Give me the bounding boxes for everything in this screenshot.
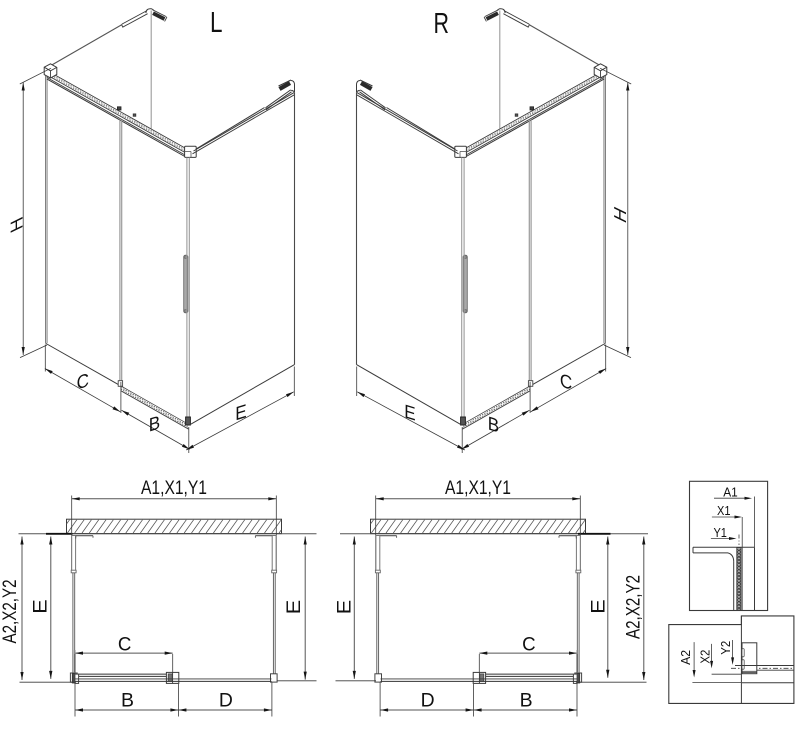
svg-text:E: E bbox=[404, 400, 415, 425]
svg-text:A2: A2 bbox=[678, 650, 693, 665]
svg-text:A1,X1,Y1: A1,X1,Y1 bbox=[141, 478, 207, 499]
svg-text:Y1: Y1 bbox=[713, 525, 727, 540]
svg-text:A2,X2,Y2: A2,X2,Y2 bbox=[0, 580, 21, 644]
svg-text:E: E bbox=[284, 600, 305, 615]
svg-text:D: D bbox=[219, 690, 233, 711]
svg-text:B: B bbox=[488, 412, 499, 437]
svg-text:X2: X2 bbox=[697, 650, 712, 664]
svg-text:C: C bbox=[77, 368, 89, 393]
svg-text:X1: X1 bbox=[717, 503, 731, 518]
svg-text:R: R bbox=[434, 8, 450, 40]
svg-text:E: E bbox=[235, 400, 246, 425]
svg-text:L: L bbox=[210, 7, 223, 39]
svg-text:E: E bbox=[589, 599, 610, 614]
svg-text:C: C bbox=[118, 635, 132, 656]
svg-text:A1,X1,Y1: A1,X1,Y1 bbox=[445, 478, 511, 499]
svg-text:A2,X2,Y2: A2,X2,Y2 bbox=[624, 575, 645, 639]
svg-text:B: B bbox=[520, 690, 533, 711]
svg-text:A1: A1 bbox=[723, 485, 738, 500]
svg-text:C: C bbox=[560, 369, 572, 394]
svg-text:D: D bbox=[421, 690, 435, 711]
svg-text:B: B bbox=[121, 690, 134, 711]
svg-text:E: E bbox=[31, 599, 52, 614]
svg-text:C: C bbox=[522, 635, 536, 656]
svg-text:Y2: Y2 bbox=[718, 641, 733, 655]
svg-text:B: B bbox=[149, 411, 160, 436]
svg-text:E: E bbox=[335, 600, 356, 615]
